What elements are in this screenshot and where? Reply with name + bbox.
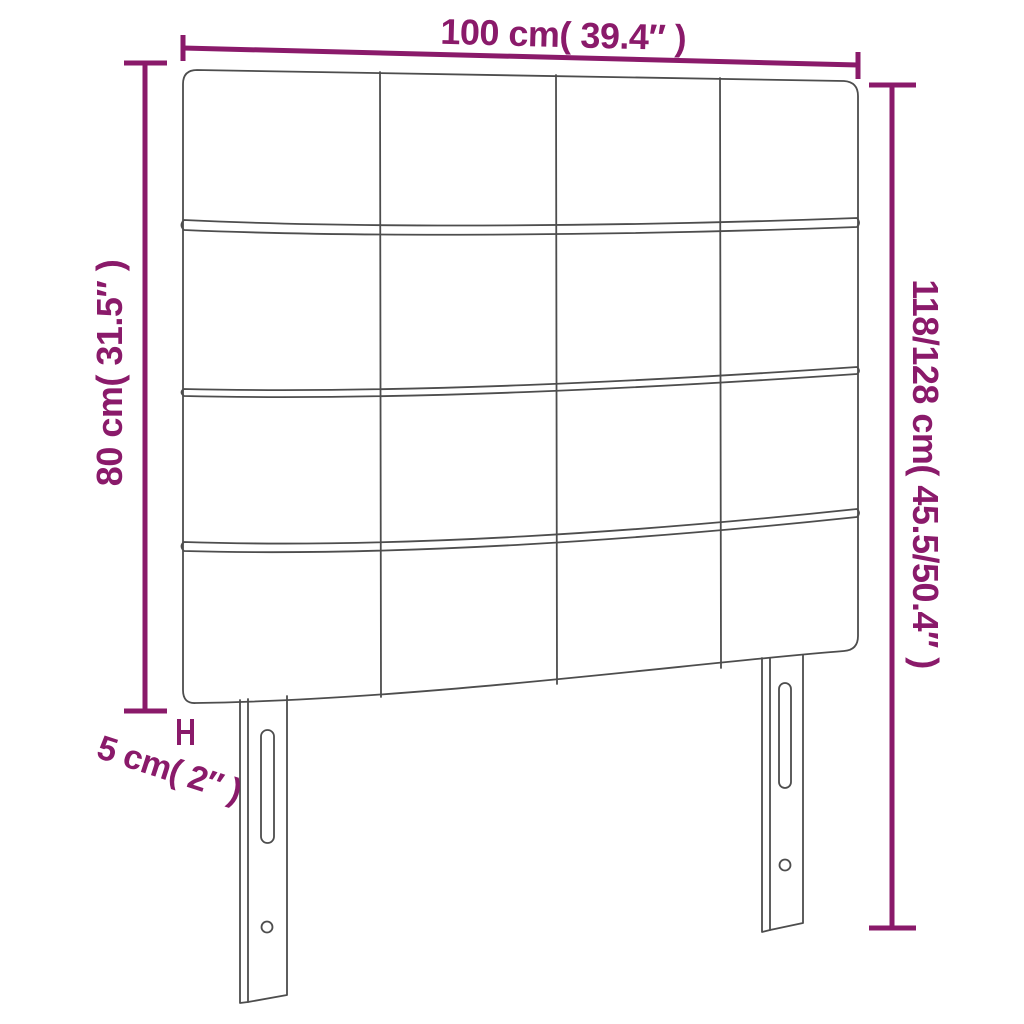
headboard-leg-right bbox=[762, 655, 803, 932]
panel-height-dimension: 80 cm( 31.5″ ) bbox=[89, 63, 167, 711]
headboard-panel-outline bbox=[183, 70, 858, 703]
leg-left-slot bbox=[261, 730, 274, 843]
leg-right-slot bbox=[779, 683, 791, 788]
leg-left-outline bbox=[240, 696, 287, 1003]
leg-right-outline bbox=[762, 655, 803, 932]
headboard-dimension-diagram: 100 cm( 39.4″ ) 80 cm( 31.5″ ) 118/128 c… bbox=[0, 0, 1024, 1024]
total-height-dimension: 118/128 cm( 45.5/50.4″ ) bbox=[869, 85, 946, 928]
panel-height-dimension-label: 80 cm( 31.5″ ) bbox=[89, 260, 130, 486]
panel-vertical-seam-3 bbox=[720, 78, 721, 668]
thickness-dimension-label: 5 cm( 2″ ) bbox=[93, 728, 247, 810]
diagram-canvas: 100 cm( 39.4″ ) 80 cm( 31.5″ ) 118/128 c… bbox=[0, 0, 1024, 1024]
leg-right-screw-hole bbox=[780, 860, 791, 871]
width-dimension: 100 cm( 39.4″ ) bbox=[183, 11, 858, 79]
thickness-dimension: 5 cm( 2″ ) bbox=[93, 719, 247, 811]
headboard-leg-left bbox=[240, 696, 287, 1003]
leg-left-screw-hole bbox=[262, 922, 273, 933]
panel-vertical-seam-1 bbox=[380, 72, 381, 697]
panel-vertical-seam-2 bbox=[556, 75, 557, 684]
total-height-dimension-label: 118/128 cm( 45.5/50.4″ ) bbox=[905, 279, 946, 669]
headboard-drawing bbox=[182, 70, 860, 1003]
width-dimension-label: 100 cm( 39.4″ ) bbox=[440, 11, 687, 58]
